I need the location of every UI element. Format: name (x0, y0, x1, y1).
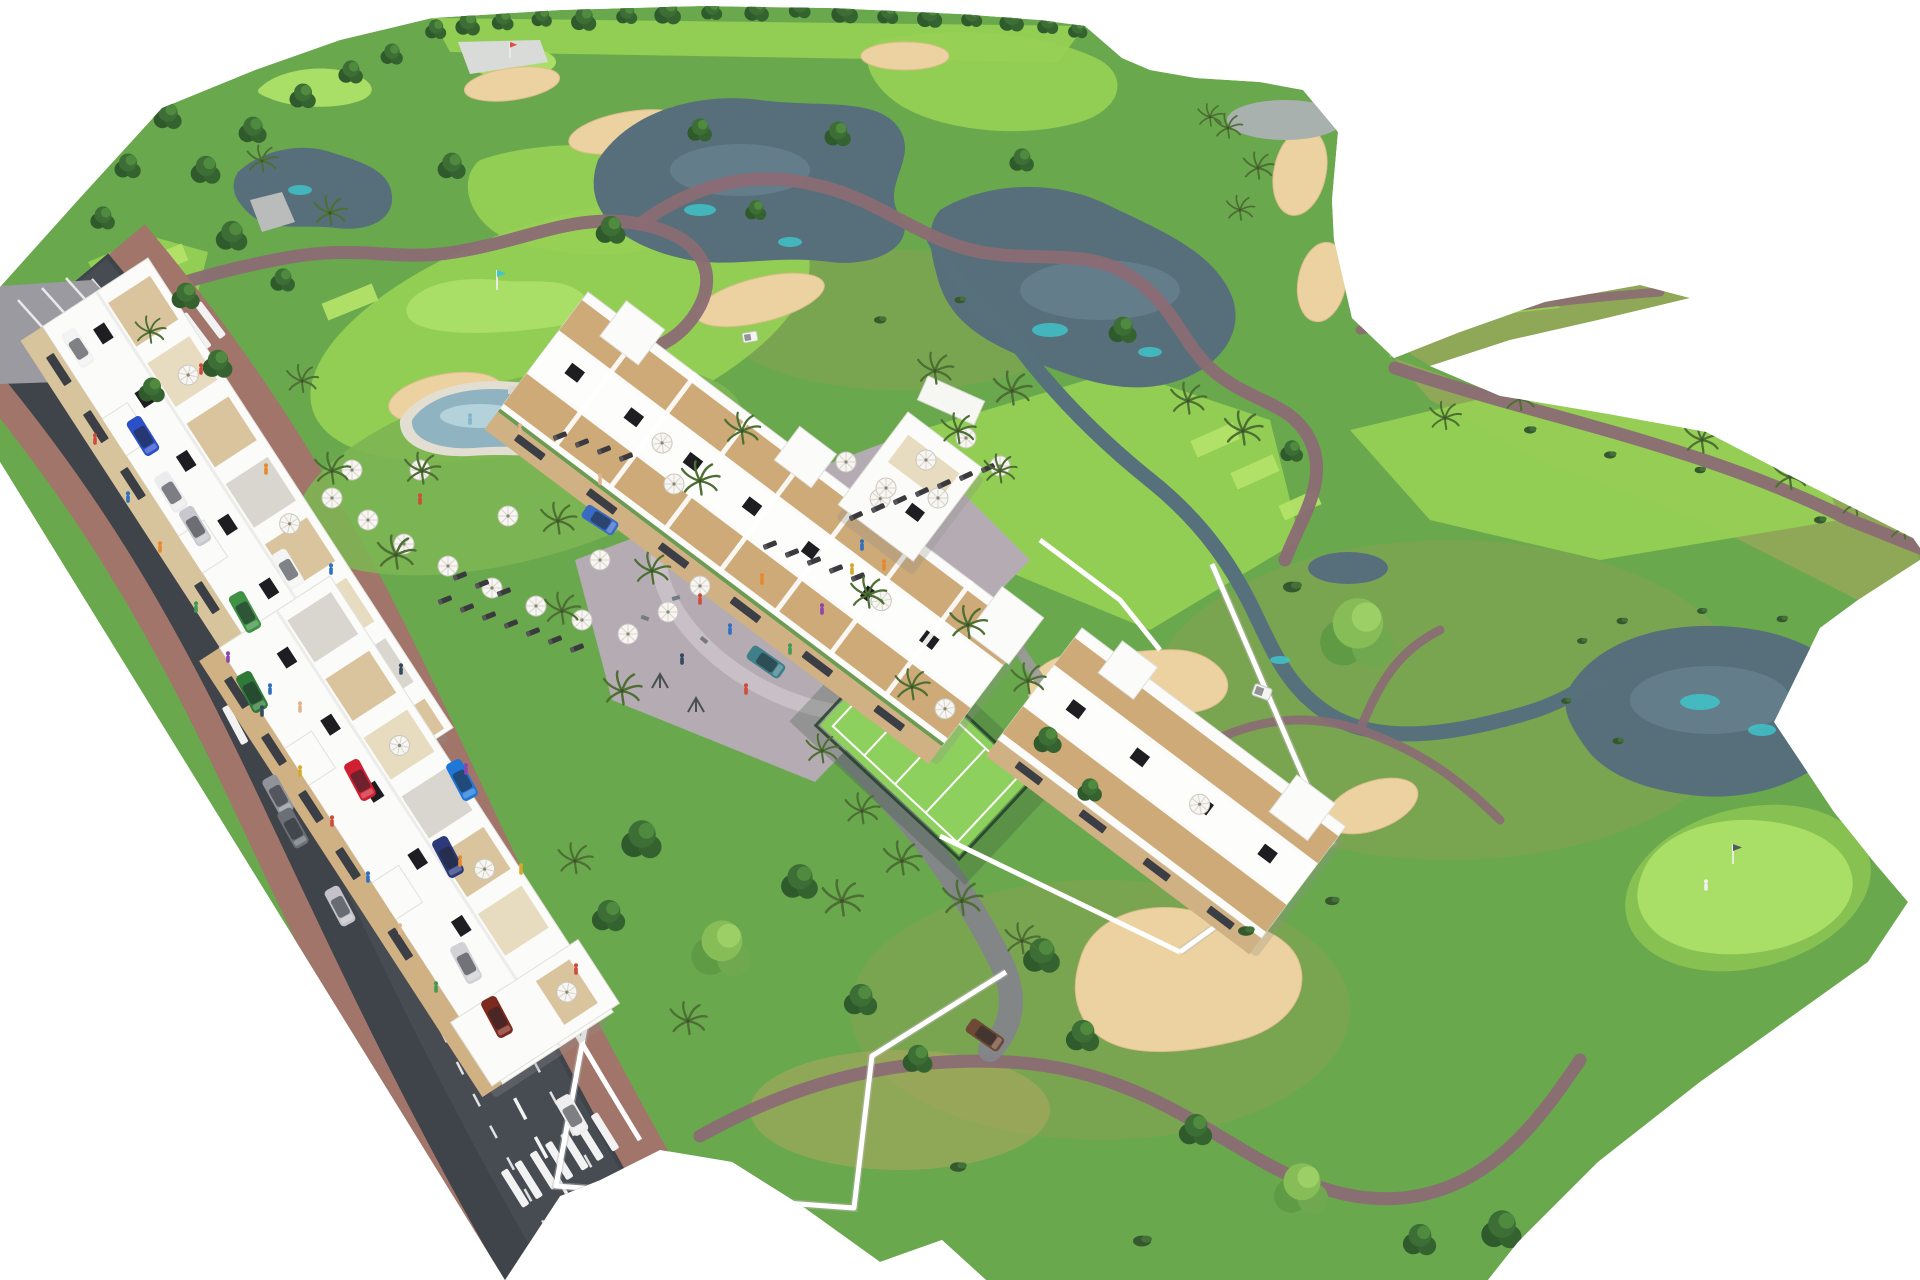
parasol (658, 602, 678, 622)
pedestrian (126, 491, 130, 502)
person-plaza (820, 603, 824, 614)
water-teal-shallow (778, 237, 802, 247)
golf-cart (742, 331, 758, 343)
pedestrian (398, 923, 402, 934)
water-teal-shallow (1032, 323, 1068, 337)
pedestrian (199, 363, 203, 374)
water-teal-shallow (684, 204, 716, 216)
parasol (590, 550, 610, 570)
water-teal-shallow (1270, 656, 1290, 664)
pedestrian (330, 815, 334, 826)
pedestrian (260, 705, 264, 716)
golfer (1704, 879, 1708, 890)
pedestrian (264, 463, 268, 474)
parasol (664, 474, 684, 494)
pedestrian (329, 563, 333, 574)
pedestrian (298, 765, 302, 776)
aerial-render-canvas (0, 0, 1920, 1280)
parasol (916, 450, 936, 470)
person-plaza (744, 683, 748, 694)
pedestrian-crossing (268, 683, 272, 694)
pedestrian (226, 651, 230, 662)
swimmer (468, 413, 472, 424)
parasol (618, 624, 638, 644)
pedestrian (366, 871, 370, 882)
parasol (438, 556, 458, 576)
person-pool-lawn (418, 493, 422, 504)
water-teal-shallow (1680, 694, 1720, 710)
parasol (572, 610, 592, 630)
pedestrian (574, 963, 578, 974)
person-pool-lawn (598, 473, 602, 484)
sand-bunker (861, 42, 949, 70)
parasol (690, 576, 710, 596)
parasol (358, 510, 378, 530)
person-walkway (882, 559, 886, 570)
person-plaza (680, 653, 684, 664)
parasol (526, 596, 546, 616)
pedestrian (464, 763, 468, 774)
pedestrian (399, 663, 403, 674)
lake (1308, 552, 1388, 584)
person-plaza (760, 573, 764, 584)
person-walkway (860, 539, 864, 550)
pedestrian (434, 981, 438, 992)
parasol (928, 488, 948, 508)
pedestrian (158, 541, 162, 552)
worker-by-car (458, 855, 462, 866)
person-plaza (788, 643, 792, 654)
pedestrian (93, 433, 97, 444)
render-viewport (0, 0, 1920, 1280)
water-teal-shallow (288, 185, 312, 195)
water-teal-shallow (1748, 724, 1776, 736)
parasol (876, 478, 896, 498)
person-plaza (698, 593, 702, 604)
water-teal-shallow (1138, 347, 1162, 357)
person-plaza (850, 563, 854, 574)
parasol (836, 452, 856, 472)
pedestrian (194, 601, 198, 612)
person-plaza (728, 623, 732, 634)
parasol (498, 506, 518, 526)
pedestrian-crossing (298, 701, 302, 712)
swimmer (518, 423, 522, 434)
parasol (322, 488, 342, 508)
pedestrian (519, 863, 523, 874)
